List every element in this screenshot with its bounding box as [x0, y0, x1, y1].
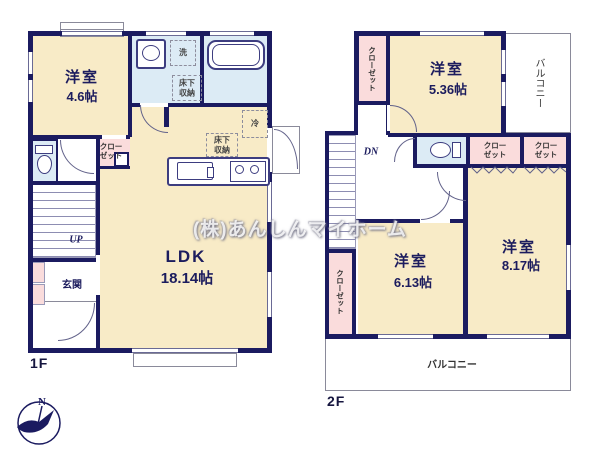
room-name: LDK — [166, 247, 207, 267]
folding-door-icon — [523, 166, 567, 175]
window — [566, 245, 571, 290]
closet-label: クローゼット — [368, 47, 377, 92]
stairs-up-label: UP — [69, 235, 82, 246]
room-name: 洋室 — [430, 61, 464, 79]
underfloor-storage-label: 床下 収納 — [179, 78, 195, 97]
room-area: 6.13帖 — [394, 275, 432, 291]
wall-segment — [325, 131, 358, 135]
room-name: 洋室 — [394, 253, 428, 271]
window — [28, 80, 33, 102]
room-area: 8.17帖 — [502, 258, 540, 274]
closet-label: クロー ゼット — [100, 142, 123, 160]
window — [62, 31, 122, 36]
wall-segment — [354, 101, 390, 105]
window — [28, 52, 33, 74]
wall-segment — [325, 249, 356, 253]
entrance-door-arc — [58, 303, 95, 341]
wall-segment — [28, 181, 98, 185]
closet-label: クローゼット — [336, 270, 345, 315]
window — [501, 50, 506, 74]
vanity-basin-icon — [142, 45, 160, 61]
entrance-label: 玄関 — [62, 280, 82, 292]
wall-segment — [96, 166, 130, 169]
floor-plan: 洋室 4.6帖 LDK 18.14帖 玄関 クロー ゼット UP 洗 床下 収納… — [0, 0, 600, 449]
bay-window-line — [60, 29, 124, 30]
terrace-1f — [133, 353, 237, 367]
toilet-tank-icon — [35, 145, 53, 154]
closet-label: クロー ゼット — [484, 141, 507, 159]
room-name: 洋室 — [502, 239, 536, 257]
window — [210, 31, 254, 36]
balcony-side-label: バルコニー — [532, 58, 544, 108]
door-arc — [60, 140, 94, 174]
door-gap — [96, 255, 100, 295]
wall-segment — [128, 33, 132, 137]
stove-burner-icon — [250, 165, 259, 174]
closet-label: クロー ゼット — [535, 141, 558, 159]
wall-segment — [352, 249, 356, 335]
compass-north-label: N — [38, 396, 46, 408]
laundry-label: 洗 — [179, 48, 187, 58]
room-area: 4.6帖 — [66, 89, 97, 105]
compass-icon: N — [12, 394, 68, 448]
balcony-main-label: バルコニー — [427, 360, 477, 372]
stove-burner-icon — [235, 165, 244, 174]
door-arc — [421, 191, 450, 220]
toilet-tank-icon — [452, 142, 461, 158]
bathtub-inner-icon — [212, 44, 260, 66]
floor-label-2f: 2F — [327, 393, 345, 409]
toilet-bowl-icon — [430, 142, 451, 158]
watermark: (株)あんしんマイホーム — [193, 215, 407, 242]
fridge-label: 冷 — [251, 119, 259, 129]
room-area: 5.36帖 — [429, 82, 467, 98]
underfloor-storage-label: 床下 収納 — [214, 135, 230, 154]
stairs-1f — [30, 184, 96, 258]
window — [378, 334, 433, 339]
folding-door-icon — [470, 166, 518, 175]
kitchen-faucet-icon — [207, 167, 214, 178]
wall-segment — [466, 137, 470, 166]
room-name: 洋室 — [65, 69, 99, 87]
wall-segment — [28, 258, 98, 262]
floor-label-1f: 1F — [30, 355, 48, 371]
window — [267, 272, 272, 317]
window — [132, 348, 238, 353]
wall-segment — [520, 137, 524, 166]
window — [420, 31, 484, 36]
room-area: 18.14帖 — [161, 270, 214, 288]
stairs-down-label: DN — [364, 147, 378, 158]
entrance-step-line — [45, 301, 96, 302]
window — [146, 31, 186, 36]
door-gap — [102, 135, 126, 139]
window — [501, 82, 506, 106]
window — [487, 334, 549, 339]
wall-segment — [354, 31, 359, 105]
door-arc — [394, 138, 415, 162]
